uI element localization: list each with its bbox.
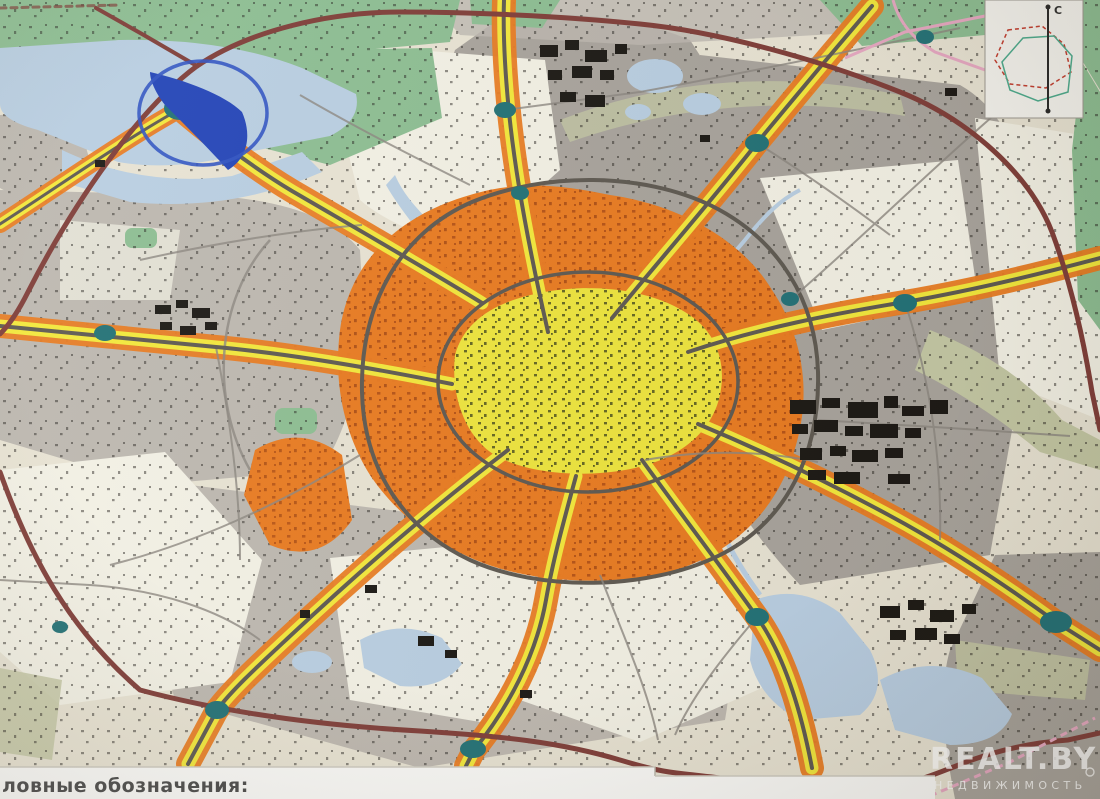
- map-photo: С ловные обозначения: REALT.BY НЕДВИЖИМО…: [0, 0, 1100, 799]
- legend-caption: ловные обозначения:: [2, 775, 249, 797]
- watermark: REALT.BY НЕДВИЖИМОСТЬ: [930, 742, 1097, 792]
- compass-inset: С: [985, 0, 1083, 118]
- north-label: С: [1054, 4, 1062, 17]
- watermark-subtitle: НЕДВИЖИМОСТЬ: [934, 779, 1087, 792]
- watermark-brand: REALT.BY: [930, 742, 1097, 777]
- city-plan-map: С ловные обозначения: REALT.BY НЕДВИЖИМО…: [0, 0, 1100, 799]
- city-core-yellow: [454, 288, 722, 474]
